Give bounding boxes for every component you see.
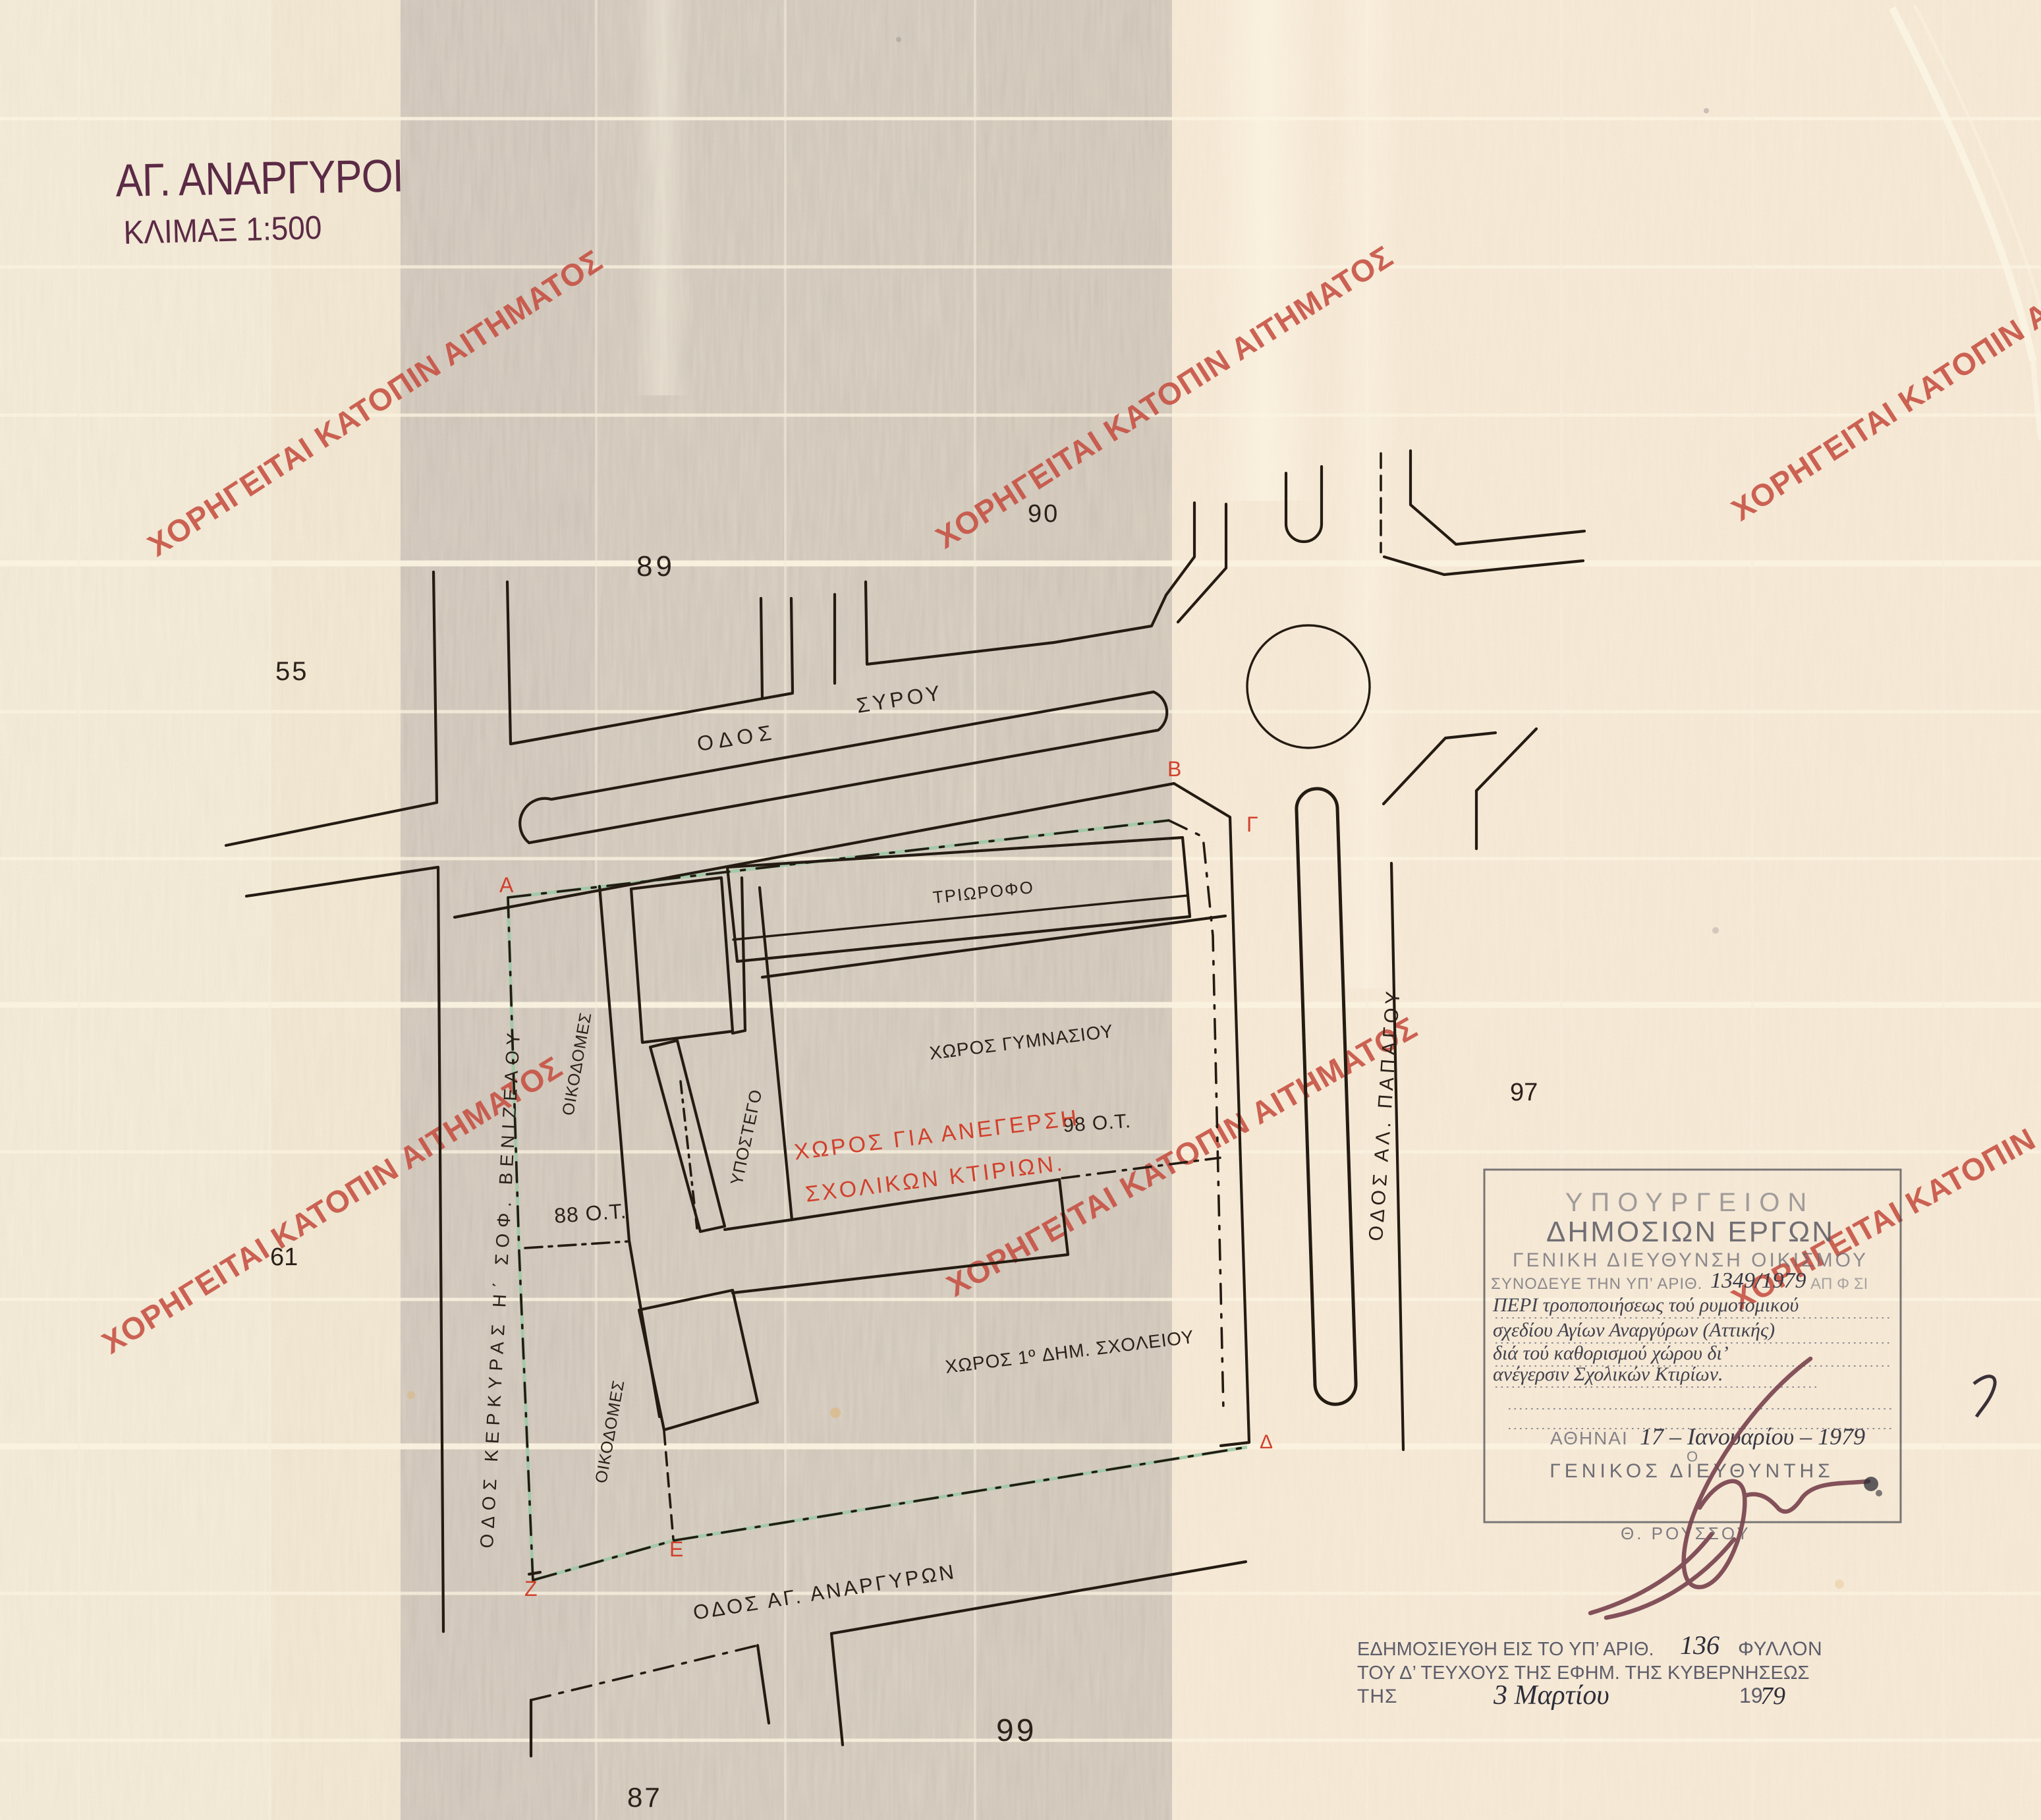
svg-text:Ζ: Ζ <box>524 1577 538 1601</box>
svg-text:Β: Β <box>1167 757 1181 781</box>
svg-text:ΣΥΝΟΔΕΥΕ ΤΗΝ ΥΠ’ ΑΡΙΘ.: ΣΥΝΟΔΕΥΕ ΤΗΝ ΥΠ’ ΑΡΙΘ. <box>1491 1275 1702 1293</box>
svg-text:79: 79 <box>1760 1682 1785 1710</box>
svg-text:Α: Α <box>499 873 514 897</box>
svg-text:87: 87 <box>627 1782 662 1813</box>
svg-text:ΦΥΛΛΟΝ: ΦΥΛΛΟΝ <box>1738 1638 1822 1660</box>
svg-text:19: 19 <box>1739 1684 1763 1707</box>
svg-text:89: 89 <box>636 550 675 583</box>
svg-text:ΑΘΗΝΑΙ: ΑΘΗΝΑΙ <box>1550 1428 1629 1448</box>
svg-text:61: 61 <box>270 1243 298 1271</box>
svg-text:ΤΗΣ: ΤΗΣ <box>1357 1686 1398 1707</box>
svg-text:3 Μαρτίου: 3 Μαρτίου <box>1493 1680 1609 1711</box>
svg-text:Γ: Γ <box>1246 812 1258 836</box>
svg-text:Ε: Ε <box>669 1537 683 1561</box>
svg-text:ΠΕΡΙ τροποποιήσεως τού ρυμοτομ: ΠΕΡΙ τροποποιήσεως τού ρυμοτομικού <box>1492 1294 1799 1316</box>
svg-text:88 O.T.: 88 O.T. <box>553 1199 627 1228</box>
svg-text:ΑΓ. ΑΝΑΡΓΥΡΟΙ: ΑΓ. ΑΝΑΡΓΥΡΟΙ <box>115 150 404 206</box>
svg-text:ΓΕΝΙΚΗ ΔΙΕΥΘΥΝΣΗ ΟΙΚΙΣΜΟΥ: ΓΕΝΙΚΗ ΔΙΕΥΘΥΝΣΗ ΟΙΚΙΣΜΟΥ <box>1513 1249 1868 1271</box>
svg-text:136: 136 <box>1680 1630 1719 1660</box>
svg-text:Δ: Δ <box>1260 1431 1273 1453</box>
svg-text:ΕΔΗΜΟΣΙΕΥΘΗ ΕΙΣ ΤΟ ΥΠ’ ΑΡΙΘ.: ΕΔΗΜΟΣΙΕΥΘΗ ΕΙΣ ΤΟ ΥΠ’ ΑΡΙΘ. <box>1357 1639 1654 1660</box>
svg-text:90: 90 <box>1028 500 1059 528</box>
svg-text:1349/1979: 1349/1979 <box>1710 1268 1806 1293</box>
svg-text:99: 99 <box>996 1713 1036 1748</box>
svg-text:διά τού καθορισμού χώρου δι’: διά τού καθορισμού χώρου δι’ <box>1493 1342 1729 1364</box>
svg-text:ΚΛΙΜΑΞ 1:500: ΚΛΙΜΑΞ 1:500 <box>123 210 322 251</box>
svg-text:ΔΗΜΟΣΙΩΝ ΕΡΓΩΝ: ΔΗΜΟΣΙΩΝ ΕΡΓΩΝ <box>1546 1216 1835 1248</box>
svg-text:17 – Ιανουαρίου – 1979: 17 – Ιανουαρίου – 1979 <box>1640 1423 1865 1450</box>
svg-text:σχεδίου Αγίων Αναργύρων (Αττικ: σχεδίου Αγίων Αναργύρων (Αττικής) <box>1493 1319 1775 1341</box>
svg-text:ΥΠΟΥΡΓΕΙΟΝ: ΥΠΟΥΡΓΕΙΟΝ <box>1565 1188 1815 1217</box>
svg-text:ΑΠ Φ ΣΙ: ΑΠ Φ ΣΙ <box>1810 1275 1868 1293</box>
svg-text:55: 55 <box>275 657 309 686</box>
svg-text:97: 97 <box>1510 1079 1538 1106</box>
svg-text:ΓΕΝΙΚΟΣ ΔΙΕΥΘΥΝΤΗΣ: ΓΕΝΙΚΟΣ ΔΙΕΥΘΥΝΤΗΣ <box>1550 1460 1833 1482</box>
